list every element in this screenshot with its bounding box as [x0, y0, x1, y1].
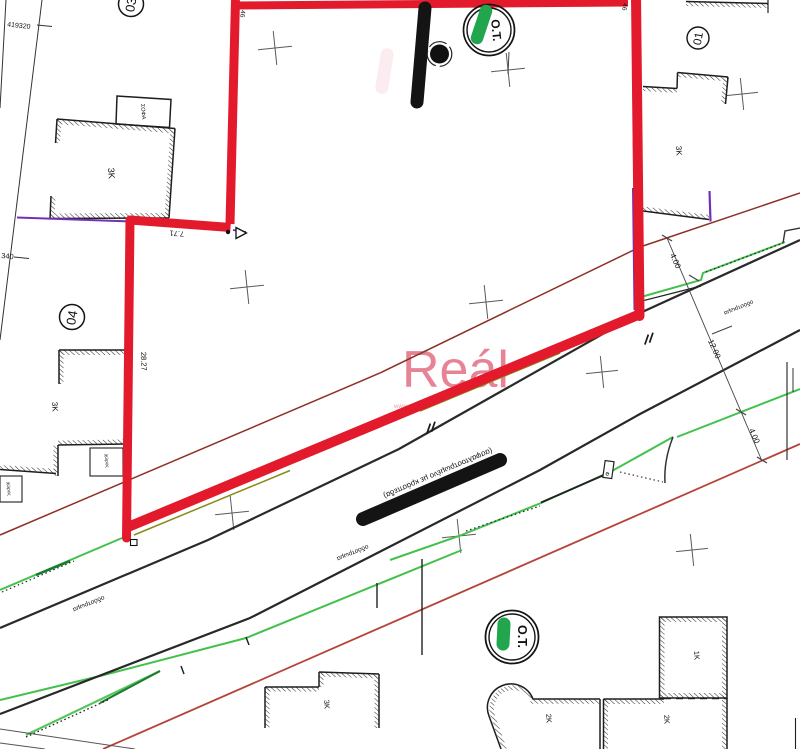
svg-text:O.T.: O.T.	[515, 625, 529, 648]
svg-text:7.71: 7.71	[169, 228, 184, 238]
svg-text:01: 01	[692, 31, 706, 46]
svg-text:3K: 3K	[322, 700, 332, 710]
svg-text:3K: 3K	[106, 167, 117, 179]
svg-text:O.T.: O.T.	[488, 19, 504, 42]
svg-text:3K: 3K	[674, 146, 684, 157]
svg-text:340: 340	[1, 251, 14, 261]
svg-text:03: 03	[122, 0, 139, 13]
svg-text:3K: 3K	[50, 402, 60, 413]
svg-text:04: 04	[63, 309, 80, 326]
svg-text:ΣΟΦΑ: ΣΟΦΑ	[139, 104, 146, 120]
svg-text:2K: 2K	[544, 714, 554, 724]
svg-text:1K: 1K	[692, 651, 702, 661]
svg-text:2K: 2K	[662, 715, 672, 725]
svg-text:46: 46	[620, 3, 628, 11]
svg-text:46: 46	[238, 10, 246, 18]
svg-text:28.27: 28.27	[139, 352, 149, 371]
